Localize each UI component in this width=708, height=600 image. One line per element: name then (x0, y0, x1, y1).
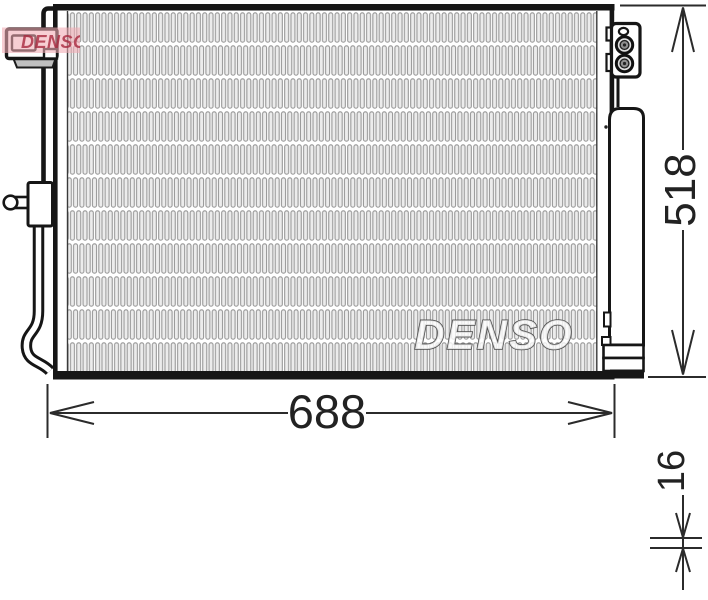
corner-red-watermark: DENSO (2, 28, 88, 54)
thickness-dimension-label: 16 (651, 450, 693, 492)
bottom-header-bar (53, 371, 615, 380)
fitting-slot (619, 28, 628, 35)
receiver-drier (602, 109, 644, 379)
condenser-technical-drawing: DENSO DENSO 688 518 16 (0, 0, 708, 600)
drier-base (604, 358, 644, 371)
left-header-tank (58, 11, 68, 372)
fitting-port-top (616, 37, 632, 53)
bracket-pin-cap (4, 196, 18, 210)
top-header-bar (53, 4, 615, 11)
mounting-bracket (4, 183, 53, 227)
dimension-thickness (650, 495, 702, 590)
bracket-block (28, 183, 53, 227)
fitting-port-bottom (616, 55, 632, 71)
drier-lower-section (604, 345, 644, 358)
denso-logo-watermark: DENSO (414, 311, 573, 358)
drier-tube (610, 109, 644, 346)
denso-red-logo: DENSO (21, 32, 88, 52)
width-dimension-label: 688 (288, 385, 366, 438)
drawing-canvas: DENSO DENSO 688 518 16 (0, 0, 708, 600)
height-dimension-label: 518 (656, 153, 705, 226)
